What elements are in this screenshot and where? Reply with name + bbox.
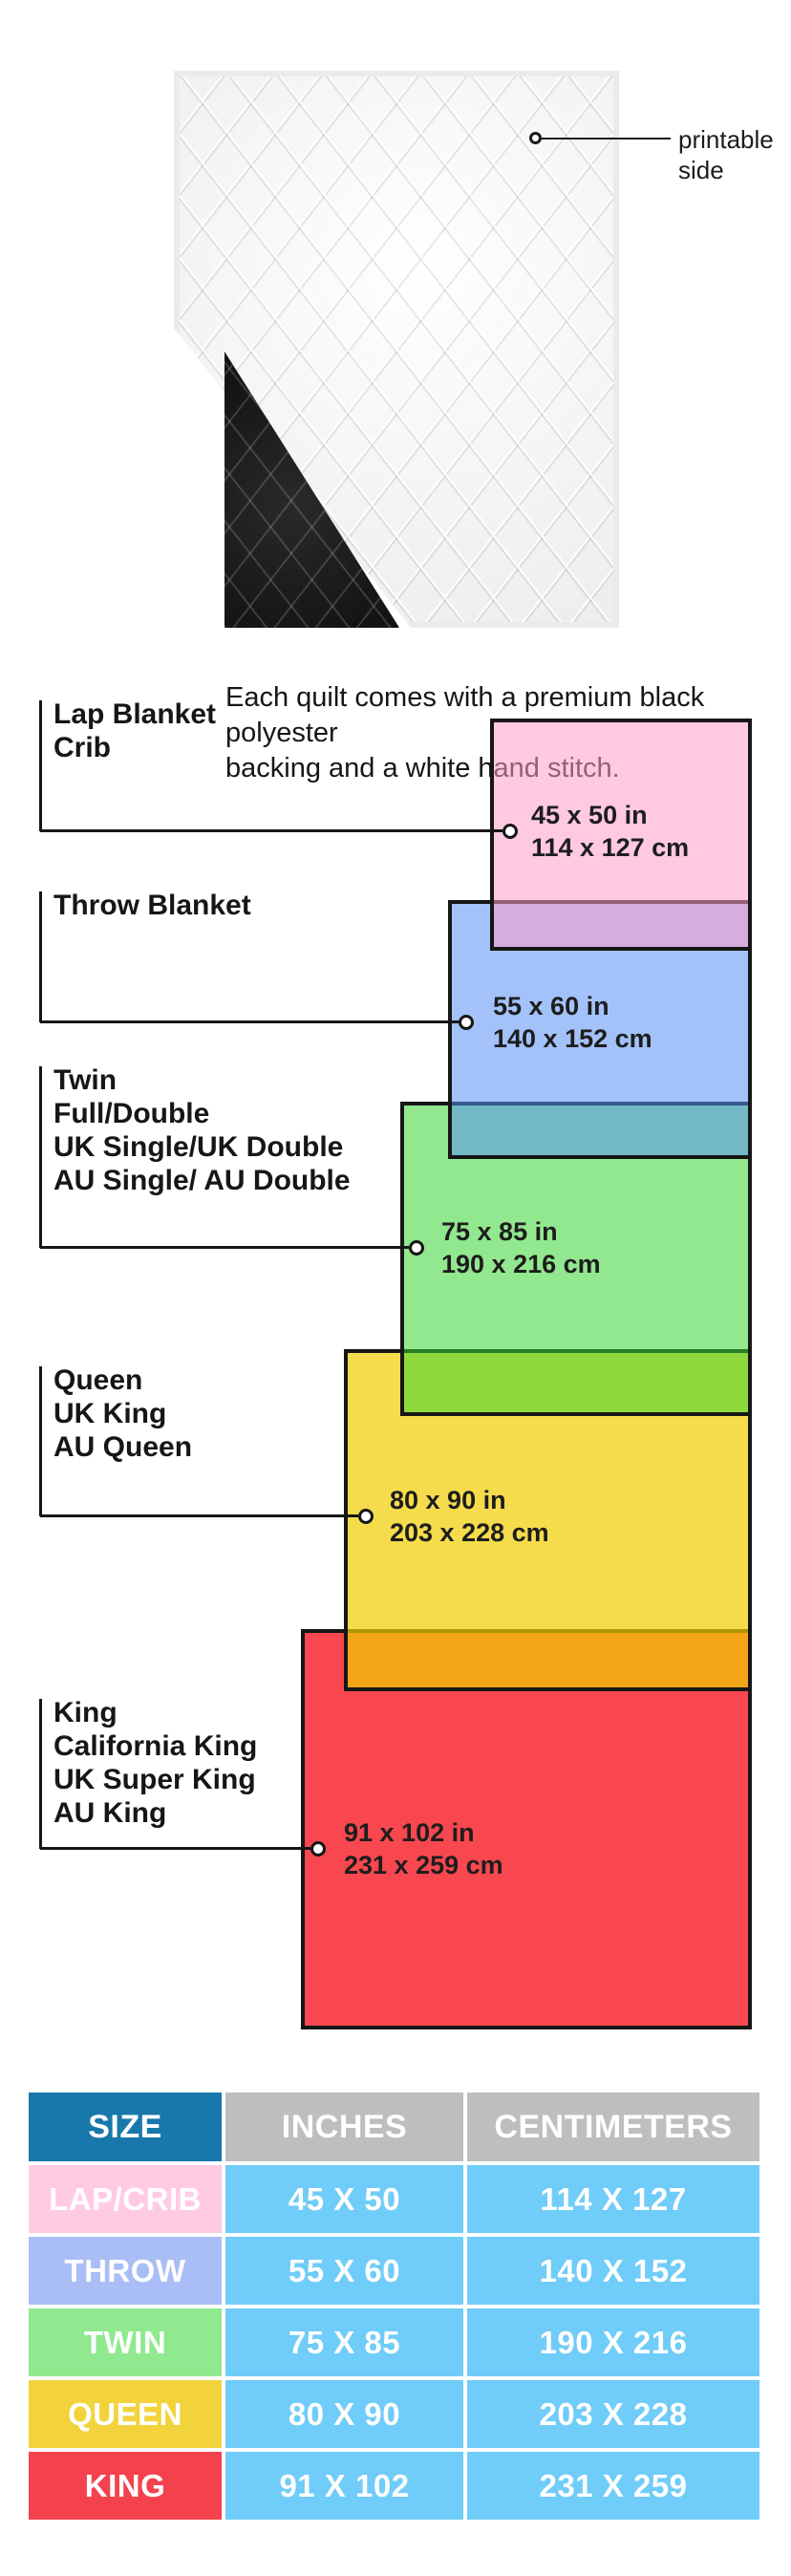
dimension-cm: 203 x 228 cm <box>390 1516 549 1549</box>
size-label-line: AU Queen <box>53 1430 192 1464</box>
table-row-label: LAP/CRIB <box>29 2165 222 2233</box>
size-label-line: Twin <box>53 1063 351 1097</box>
dimensions-lap: 45 x 50 in 114 x 127 cm <box>531 799 689 864</box>
dimension-cm: 140 x 152 cm <box>493 1022 652 1055</box>
marker-dot-queen <box>358 1509 374 1524</box>
printable-side-label-line: printable <box>678 124 774 155</box>
dimensions-king: 91 x 102 in 231 x 259 cm <box>344 1816 503 1881</box>
table-header-centimeters: CENTIMETERS <box>467 2093 759 2161</box>
leader-line-lap <box>40 829 502 832</box>
printable-side-label-line: side <box>678 155 774 185</box>
label-tick-twin <box>39 1066 42 1248</box>
marker-dot-throw <box>459 1015 474 1030</box>
size-label-line: King <box>53 1696 257 1729</box>
leader-line-king <box>40 1847 310 1850</box>
dimensions-queen: 80 x 90 in 203 x 228 cm <box>390 1484 549 1549</box>
table-cell-cm: 231 X 259 <box>467 2452 759 2520</box>
size-label-twin: Twin Full/Double UK Single/UK Double AU … <box>53 1063 351 1197</box>
leader-line-throw <box>40 1020 459 1023</box>
leader-line-twin <box>40 1246 409 1249</box>
label-tick-lap <box>39 700 42 831</box>
printable-side-marker-dot <box>529 132 542 144</box>
label-tick-king <box>39 1699 42 1849</box>
table-row-label: TWIN <box>29 2308 222 2376</box>
size-table: SIZE INCHES CENTIMETERS LAP/CRIB 45 X 50… <box>29 2093 759 2520</box>
size-label-queen: Queen UK King AU Queen <box>53 1363 192 1464</box>
dimension-inches: 45 x 50 in <box>531 799 689 831</box>
dimensions-throw: 55 x 60 in 140 x 152 cm <box>493 990 652 1055</box>
marker-dot-lap <box>502 824 518 839</box>
label-tick-queen <box>39 1366 42 1516</box>
printable-side-callout-line <box>542 138 671 140</box>
table-cell-cm: 203 X 228 <box>467 2380 759 2448</box>
table-cell-cm: 140 X 152 <box>467 2237 759 2305</box>
dimension-inches: 91 x 102 in <box>344 1816 503 1849</box>
size-label-lap: Lap Blanket Crib <box>53 698 216 764</box>
dimensions-twin: 75 x 85 in 190 x 216 cm <box>441 1215 601 1280</box>
dimension-inches: 55 x 60 in <box>493 990 652 1022</box>
dimension-cm: 190 x 216 cm <box>441 1248 601 1280</box>
table-header-inches: INCHES <box>225 2093 463 2161</box>
table-cell-cm: 190 X 216 <box>467 2308 759 2376</box>
table-cell-inches: 91 X 102 <box>225 2452 463 2520</box>
dimension-inches: 80 x 90 in <box>390 1484 549 1516</box>
size-label-line: California King <box>53 1729 257 1763</box>
leader-line-queen <box>40 1514 358 1517</box>
marker-dot-king <box>310 1841 326 1857</box>
quilt-size-guide-infographic: printable side Each quilt comes with a p… <box>0 0 791 2576</box>
size-label-line: AU King <box>53 1796 257 1830</box>
size-label-line: Crib <box>53 731 216 764</box>
marker-dot-twin <box>409 1240 424 1256</box>
table-row-label: THROW <box>29 2237 222 2305</box>
table-cell-cm: 114 X 127 <box>467 2165 759 2233</box>
table-row-label: KING <box>29 2452 222 2520</box>
size-label-line: AU Single/ AU Double <box>53 1164 351 1197</box>
dimension-inches: 75 x 85 in <box>441 1215 601 1248</box>
size-label-line: Throw Blanket <box>53 889 251 922</box>
size-label-line: Lap Blanket <box>53 698 216 731</box>
size-label-line: Full/Double <box>53 1097 351 1130</box>
size-label-line: UK King <box>53 1397 192 1430</box>
table-row-label: QUEEN <box>29 2380 222 2448</box>
table-cell-inches: 80 X 90 <box>225 2380 463 2448</box>
size-label-line: Queen <box>53 1363 192 1397</box>
table-cell-inches: 45 X 50 <box>225 2165 463 2233</box>
label-tick-throw <box>39 891 42 1022</box>
size-label-line: UK Super King <box>53 1763 257 1796</box>
dimension-cm: 231 x 259 cm <box>344 1849 503 1881</box>
table-cell-inches: 55 X 60 <box>225 2237 463 2305</box>
dimension-cm: 114 x 127 cm <box>531 831 689 864</box>
size-label-king: King California King UK Super King AU Ki… <box>53 1696 257 1830</box>
size-label-line: UK Single/UK Double <box>53 1130 351 1164</box>
table-header-size: SIZE <box>29 2093 222 2161</box>
table-cell-inches: 75 X 85 <box>225 2308 463 2376</box>
printable-side-label: printable side <box>678 124 774 185</box>
size-label-throw: Throw Blanket <box>53 889 251 922</box>
